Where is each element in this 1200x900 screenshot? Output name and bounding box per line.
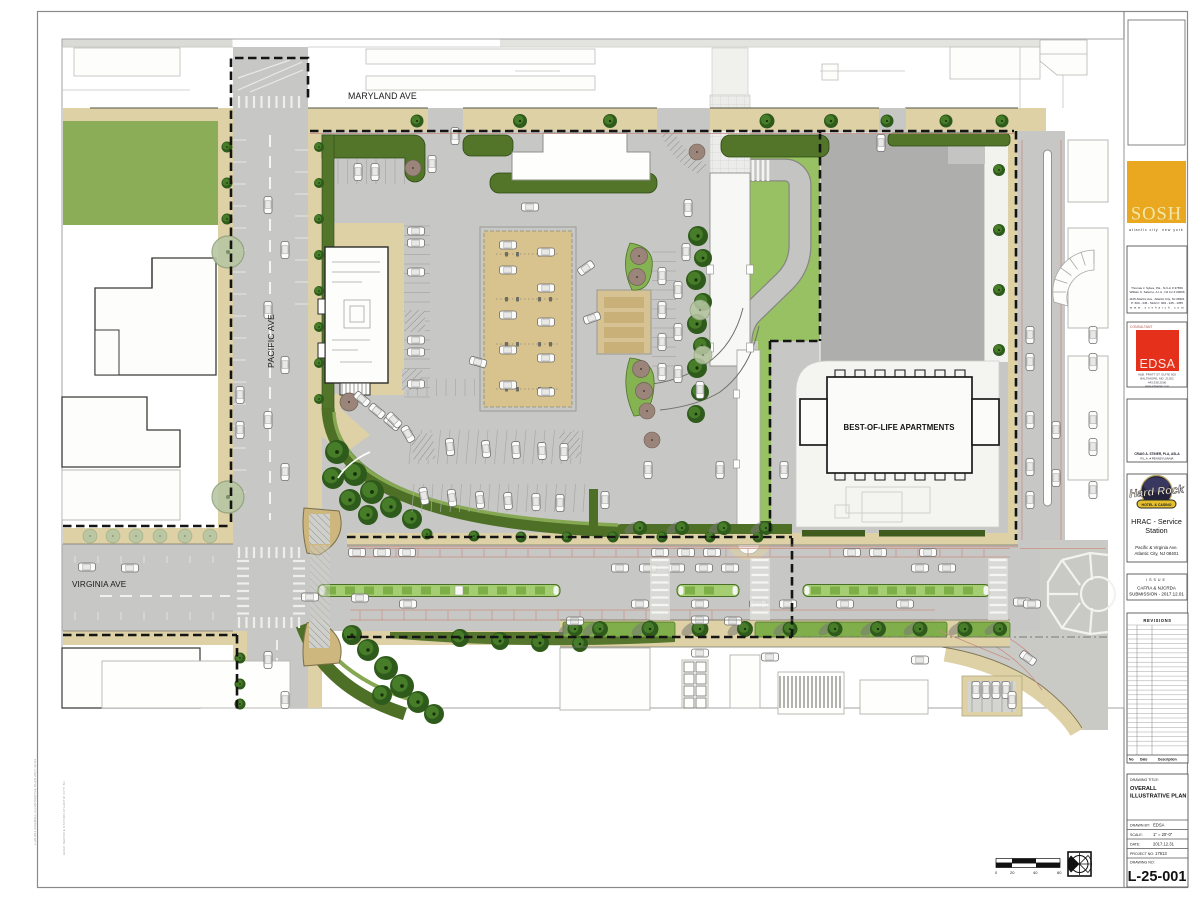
svg-text:OVERALL: OVERALL [1130,786,1157,792]
svg-text:SCALE:: SCALE: [1130,833,1143,837]
svg-text:new york: new york [1162,228,1184,232]
svg-text:DRAWING NO:: DRAWING NO: [1130,861,1155,865]
svg-text:SOSH: SOSH [1131,205,1182,225]
svg-text:MARYLAND AVE: MARYLAND AVE [348,91,417,101]
svg-text:80: 80 [1057,870,1062,875]
svg-text:VIRGINIA AVE: VIRGINIA AVE [72,580,127,589]
svg-text:No: No [1129,758,1134,762]
svg-text:w w w . s o s h a r c h . c o: w w w . s o s h a r c h . c o m [1130,306,1184,310]
svg-text:2017.12.31: 2017.12.31 [1153,842,1175,847]
svg-text:Date: Date [1140,758,1147,762]
svg-text:ILLUSTRATIVE PLAN: ILLUSTRATIVE PLAN [1130,794,1186,800]
svg-text:www.edsaplan.com: www.edsaplan.com [1145,384,1170,388]
svg-text:HOTEL & CASINO: HOTEL & CASINO [1142,503,1172,507]
svg-text:CAFRA & NJCRDA: CAFRA & NJCRDA [1137,586,1176,591]
svg-text:1" = 20'-0": 1" = 20'-0" [1153,832,1173,837]
svg-text:HRAC - Service: HRAC - Service [1131,517,1182,526]
svg-text:DATE:: DATE: [1130,843,1140,847]
svg-text:BEST-OF-LIFE APARTMENTS: BEST-OF-LIFE APARTMENTS [843,423,954,432]
svg-text:40: 40 [1033,870,1038,875]
svg-text:PROJECT NO:: PROJECT NO: [1130,852,1154,856]
svg-text:William K. Salerno, A.I.A., NJ: William K. Salerno, A.I.A., NJ Lic # 090… [1129,290,1184,294]
svg-text:HRAC SERVICE STATION ATLANTIC: HRAC SERVICE STATION ATLANTIC CITY NJ [62,781,66,855]
svg-text:EDSA: EDSA [1153,823,1165,828]
svg-text:L-25-001 OVERALL ILLUSTRATIVE: L-25-001 OVERALL ILLUSTRATIVE PLAN 2017.… [33,759,37,845]
svg-text:20: 20 [1010,870,1015,875]
svg-text:R.L.A. # PENNSYLVANIA: R.L.A. # PENNSYLVANIA [1141,457,1174,461]
svg-text:DRAWN BY:: DRAWN BY: [1130,824,1150,828]
svg-text:Description: Description [1158,758,1177,762]
svg-text:Station: Station [1145,526,1167,535]
svg-text:L-25-001: L-25-001 [1128,869,1187,885]
svg-text:ISSUE: ISSUE [1146,578,1167,582]
svg-text:P: 609 - 345 - 5222 F: 609: P: 609 - 345 - 5222 F: 609 - 345 - 1355 [1131,301,1183,305]
svg-text:SUBMISSION - 2017.12.01: SUBMISSION - 2017.12.01 [1129,592,1184,597]
svg-text:CONSULTANT: CONSULTANT [1130,325,1152,329]
svg-text:DRAWING TITLE:: DRAWING TITLE: [1130,778,1159,782]
svg-text:Pacific & Virginia Ave.: Pacific & Virginia Ave. [1135,545,1178,550]
svg-text:REVISIONS: REVISIONS [1143,618,1171,623]
svg-text:atlantic city: atlantic city [1129,228,1158,232]
svg-text:Atlantic City, NJ 08401: Atlantic City, NJ 08401 [1134,551,1179,556]
svg-text:CRAIG A. STINER, PLA, ASLA: CRAIG A. STINER, PLA, ASLA [1134,452,1180,456]
svg-text:PACIFIC AVE: PACIFIC AVE [266,314,276,368]
svg-text:17913: 17913 [1155,851,1167,856]
svg-text:EDSA: EDSA [1139,357,1175,371]
